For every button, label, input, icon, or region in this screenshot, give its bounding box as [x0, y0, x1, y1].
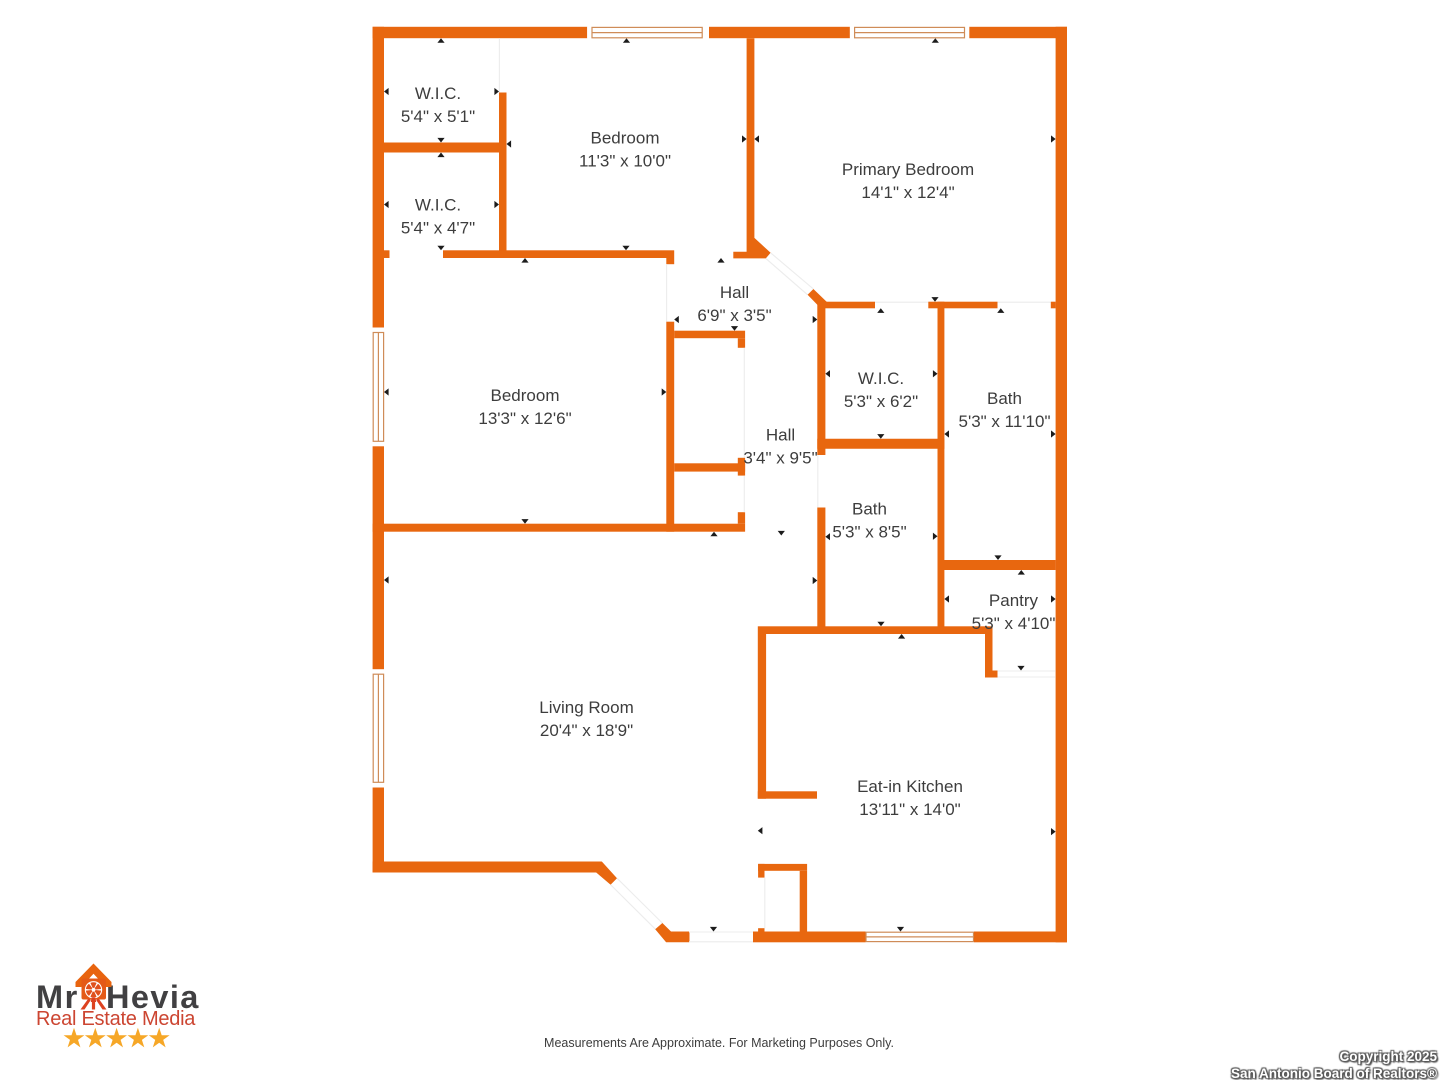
svg-text:Hall: Hall	[766, 426, 795, 445]
svg-text:5'4" x 5'1": 5'4" x 5'1"	[401, 107, 475, 126]
svg-text:Living Room: Living Room	[539, 698, 634, 717]
svg-text:W.I.C.: W.I.C.	[858, 369, 904, 388]
svg-text:5'3" x 6'2": 5'3" x 6'2"	[844, 392, 918, 411]
svg-text:5'3" x 11'10": 5'3" x 11'10"	[959, 412, 1051, 431]
svg-text:5'4" x 4'7": 5'4" x 4'7"	[401, 219, 475, 238]
svg-text:5'3" x 8'5": 5'3" x 8'5"	[832, 523, 906, 542]
svg-text:W.I.C.: W.I.C.	[415, 196, 461, 215]
svg-text:Bath: Bath	[852, 500, 887, 519]
svg-text:14'1" x 12'4": 14'1" x 12'4"	[861, 183, 954, 202]
svg-text:Copyright 2025: Copyright 2025	[1339, 1049, 1437, 1064]
svg-text:20'4" x 18'9": 20'4" x 18'9"	[540, 721, 633, 740]
svg-text:Eat-in Kitchen: Eat-in Kitchen	[857, 777, 963, 796]
svg-text:Hall: Hall	[720, 283, 749, 302]
svg-text:3'4" x 9'5": 3'4" x 9'5"	[743, 449, 817, 468]
svg-text:Bedroom: Bedroom	[491, 386, 560, 405]
svg-text:San Antonio Board of Realtors®: San Antonio Board of Realtors®	[1231, 1066, 1437, 1080]
svg-text:Real Estate Media: Real Estate Media	[36, 1008, 196, 1030]
svg-text:11'3" x 10'0": 11'3" x 10'0"	[579, 152, 671, 171]
svg-text:Primary Bedroom: Primary Bedroom	[842, 160, 974, 179]
svg-text:Bedroom: Bedroom	[591, 129, 660, 148]
svg-text:13'11" x 14'0": 13'11" x 14'0"	[859, 800, 960, 819]
svg-text:Measurements Are Approximate.: Measurements Are Approximate. For Market…	[544, 1036, 894, 1050]
svg-text:5'3" x 4'10": 5'3" x 4'10"	[972, 614, 1056, 633]
svg-text:W.I.C.: W.I.C.	[415, 84, 461, 103]
svg-text:Pantry: Pantry	[989, 591, 1039, 610]
svg-text:Bath: Bath	[987, 389, 1022, 408]
svg-text:13'3" x 12'6": 13'3" x 12'6"	[478, 409, 571, 428]
svg-text:6'9" x 3'5": 6'9" x 3'5"	[697, 306, 771, 325]
